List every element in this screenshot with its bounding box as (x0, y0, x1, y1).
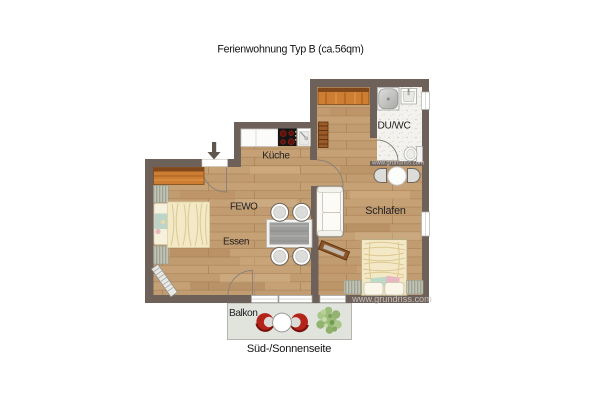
svg-text:www.grundriss.com: www.grundriss.com (351, 294, 432, 304)
svg-text:Balkon: Balkon (229, 308, 257, 319)
svg-text:Essen: Essen (223, 237, 249, 248)
svg-text:www.grundriss.com: www.grundriss.com (371, 161, 424, 167)
svg-text:Küche: Küche (262, 151, 290, 162)
svg-text:FEWO: FEWO (230, 202, 258, 213)
svg-text:DU/WC: DU/WC (377, 121, 410, 132)
svg-text:Schlafen: Schlafen (365, 205, 406, 217)
svg-text:Ferienwohnung Typ B (ca.56qm): Ferienwohnung Typ B (ca.56qm) (217, 44, 363, 56)
svg-text:Süd-/Sonnenseite: Süd-/Sonnenseite (247, 343, 331, 355)
